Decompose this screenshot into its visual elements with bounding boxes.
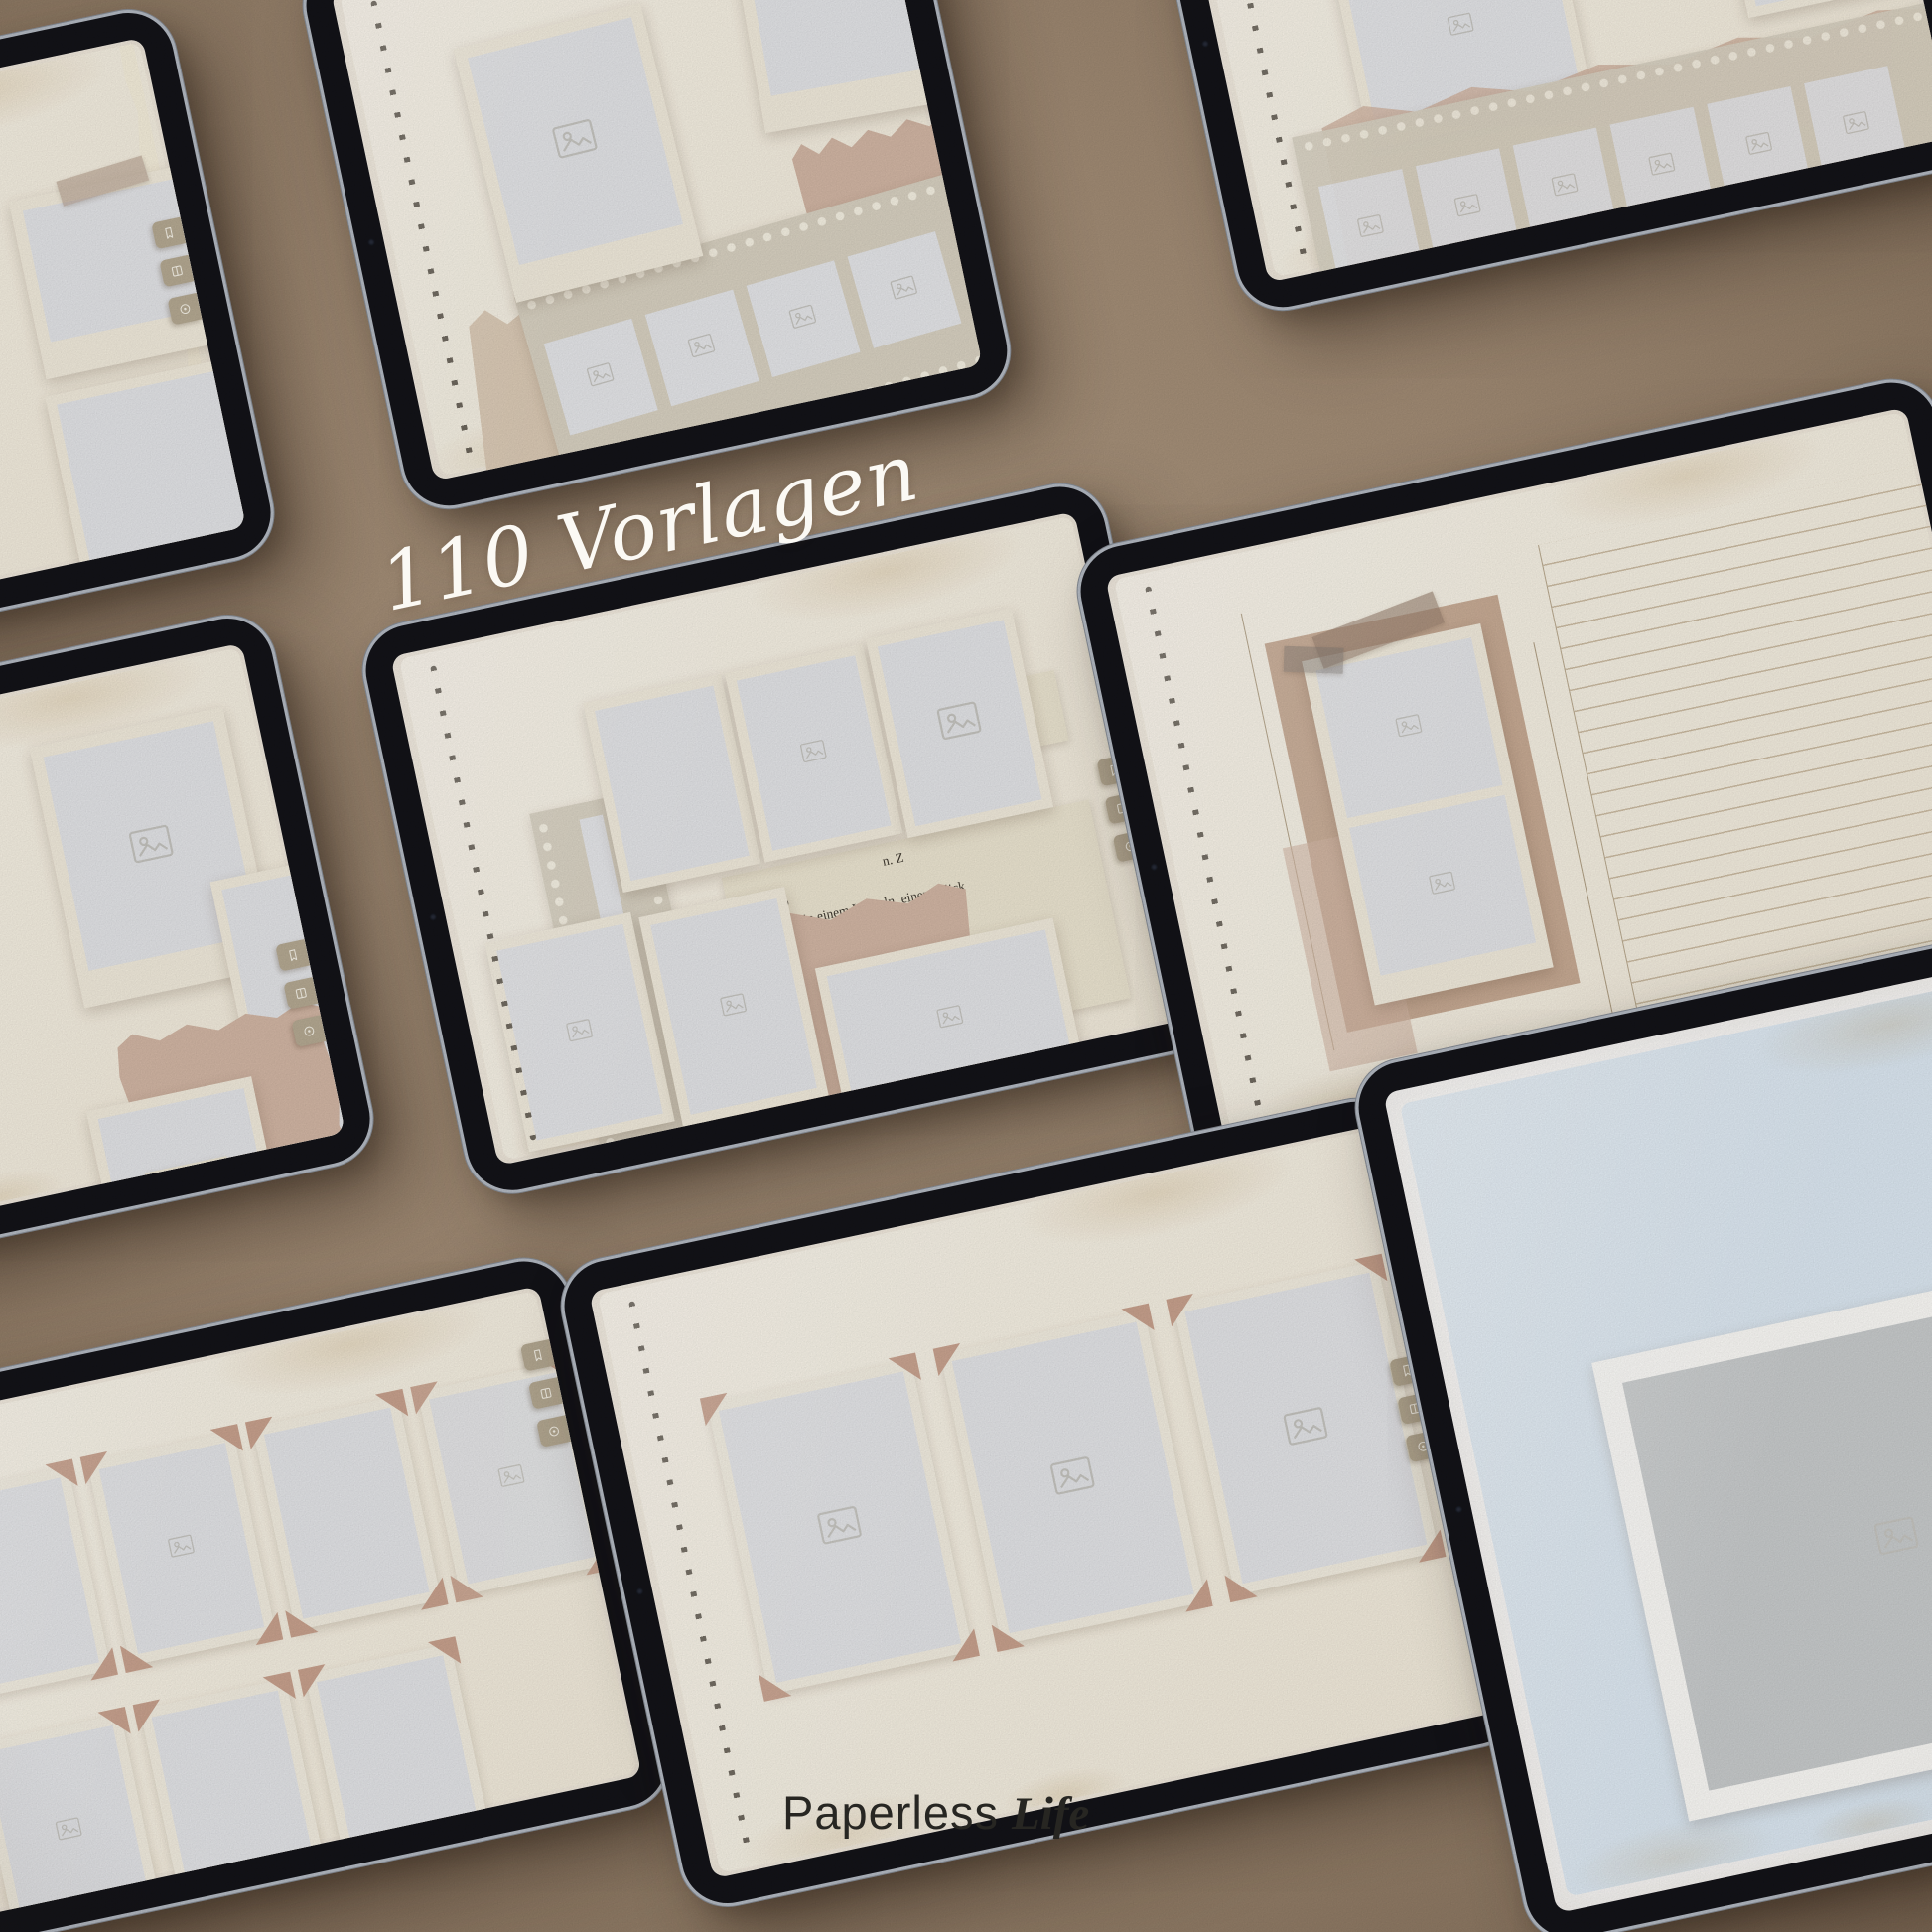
photo-corner bbox=[133, 1699, 166, 1731]
image-placeholder-icon bbox=[718, 990, 749, 1023]
photo-placeholder bbox=[1722, 0, 1932, 6]
polaroid-frame bbox=[723, 0, 955, 133]
photo-corner bbox=[415, 1578, 448, 1610]
photo-corner bbox=[138, 1895, 171, 1921]
image-placeholder-icon bbox=[166, 1532, 197, 1565]
photo-corner bbox=[303, 1860, 336, 1892]
image-placeholder-icon bbox=[934, 698, 986, 749]
photo-placeholder bbox=[737, 0, 937, 96]
pages-icon bbox=[292, 985, 310, 1003]
photo-corner bbox=[468, 1825, 500, 1858]
film-frame bbox=[1513, 128, 1618, 247]
photo-corner bbox=[451, 1570, 483, 1602]
photo-placeholder bbox=[99, 1443, 265, 1654]
photo-corner bbox=[1179, 1579, 1212, 1611]
pages-tab[interactable] bbox=[528, 1377, 563, 1410]
lens-icon bbox=[176, 300, 194, 318]
photo-corner bbox=[1224, 1570, 1257, 1602]
photo-corner bbox=[428, 1636, 461, 1669]
photo-placeholder bbox=[57, 370, 246, 614]
photo-corner bbox=[992, 1619, 1025, 1652]
stamp-frame bbox=[305, 1643, 493, 1878]
photo-placeholder bbox=[468, 17, 683, 265]
image-placeholder-icon bbox=[549, 115, 602, 167]
tablet-screen bbox=[589, 1126, 1494, 1878]
image-placeholder-icon bbox=[1870, 1512, 1922, 1563]
photo-corner bbox=[285, 1604, 318, 1637]
photo-corner bbox=[245, 1417, 278, 1449]
image-placeholder-icon bbox=[496, 1462, 527, 1495]
photo-corner bbox=[85, 1647, 118, 1680]
pages-tab[interactable] bbox=[283, 977, 318, 1010]
stamp-frame bbox=[1173, 1261, 1440, 1595]
stamp-frame bbox=[0, 1714, 164, 1920]
photo-placeholder bbox=[878, 620, 1042, 826]
stamp-frame bbox=[707, 1360, 973, 1695]
photo-corner bbox=[759, 1669, 791, 1702]
polaroid-frame bbox=[453, 3, 703, 303]
tablet-screen: Paperless life bbox=[331, 0, 982, 482]
photo-corner bbox=[263, 1672, 296, 1705]
washi-tape bbox=[1284, 646, 1344, 674]
photo-corner bbox=[80, 1451, 113, 1484]
image-placeholder-icon bbox=[585, 360, 618, 394]
photo-corner bbox=[97, 1707, 130, 1739]
film-frame bbox=[747, 260, 861, 377]
brand-word-regular: Paperless bbox=[782, 1785, 999, 1840]
photo-corner bbox=[889, 1353, 921, 1386]
photo-placeholder bbox=[719, 1372, 961, 1683]
lens-icon bbox=[545, 1423, 563, 1441]
scrap-text-line: ken u bbox=[160, 1183, 225, 1215]
tablet-screen: voll gelanken uleicht sein n. Zgibin ein… bbox=[390, 511, 1182, 1166]
stamp-frame bbox=[140, 1679, 329, 1914]
stamp-frame bbox=[417, 1361, 606, 1596]
film-frame bbox=[1609, 107, 1715, 226]
film-frame bbox=[645, 290, 759, 407]
photo-corner bbox=[250, 1612, 283, 1645]
image-placeholder-icon bbox=[787, 302, 820, 336]
notebook-page bbox=[0, 42, 241, 654]
photo-frame bbox=[45, 358, 246, 624]
lens-icon bbox=[300, 1023, 318, 1040]
tablet-bottom-right bbox=[1350, 911, 1932, 1932]
image-placeholder-icon bbox=[686, 331, 719, 364]
image-placeholder-icon bbox=[889, 273, 921, 307]
photo-corner bbox=[210, 1424, 243, 1456]
photo-placeholder bbox=[264, 1408, 430, 1619]
image-placeholder-icon bbox=[798, 737, 829, 769]
bookmark-tab[interactable] bbox=[151, 217, 186, 250]
image-placeholder-icon bbox=[814, 1502, 866, 1553]
image-placeholder-icon bbox=[1427, 869, 1457, 901]
image-placeholder-icon bbox=[812, 0, 863, 8]
photo-corner bbox=[1121, 1304, 1154, 1336]
tablet-screen bbox=[0, 38, 246, 660]
tablet-top-left bbox=[0, 4, 279, 692]
stamp-frame bbox=[252, 1396, 441, 1631]
photo-placeholder bbox=[595, 686, 750, 882]
image-placeholder-icon bbox=[1550, 171, 1581, 204]
tablet-middle-left: ll geken u bbox=[0, 610, 378, 1298]
film-frame bbox=[1318, 169, 1424, 282]
photo-corner bbox=[410, 1381, 443, 1414]
page-watermark: Paperless life bbox=[863, 1108, 924, 1130]
photo-frame bbox=[86, 1076, 277, 1233]
image-placeholder-icon bbox=[125, 820, 177, 871]
film-frame bbox=[1416, 148, 1521, 267]
photo-placeholder bbox=[952, 1322, 1194, 1633]
photo-placeholder bbox=[152, 1691, 318, 1902]
photo-corner bbox=[375, 1389, 408, 1422]
photo-placeholder bbox=[1315, 637, 1502, 818]
image-placeholder-icon bbox=[1647, 150, 1678, 183]
film-frame bbox=[1804, 66, 1909, 185]
photo-placeholder bbox=[98, 1088, 266, 1221]
tablet-screen: ll geken u bbox=[0, 643, 345, 1266]
bookmark-icon bbox=[528, 1346, 546, 1364]
film-frame bbox=[848, 231, 962, 348]
image-placeholder-icon bbox=[1355, 212, 1386, 245]
photo-placeholder bbox=[650, 898, 817, 1115]
bookmark-tab[interactable] bbox=[520, 1339, 555, 1372]
image-placeholder-icon bbox=[1394, 712, 1425, 745]
promo-canvas: Paperless life bbox=[0, 0, 1932, 1932]
photo-corner bbox=[298, 1664, 331, 1697]
scrap-text-line: ll ge bbox=[156, 1166, 221, 1197]
photo-corner bbox=[45, 1459, 77, 1492]
tablet-screen bbox=[1383, 944, 1932, 1913]
photo-corner bbox=[947, 1628, 980, 1661]
image-placeholder-icon bbox=[54, 1815, 84, 1848]
photo-placeholder bbox=[1622, 1285, 1932, 1791]
photo-corner bbox=[581, 1542, 614, 1575]
photo-placeholder bbox=[1349, 795, 1536, 976]
film-frame bbox=[1707, 86, 1812, 206]
photo-corner bbox=[1354, 1254, 1387, 1287]
image-placeholder-icon bbox=[1446, 10, 1476, 43]
notebook-page bbox=[1400, 961, 1932, 1897]
image-placeholder-icon bbox=[1452, 192, 1483, 224]
ruled-lines bbox=[1538, 457, 1932, 1012]
image-placeholder-icon bbox=[1841, 109, 1871, 142]
stamp-frame bbox=[940, 1311, 1206, 1645]
photo-mat bbox=[1591, 1254, 1932, 1821]
pages-icon bbox=[168, 262, 186, 280]
bookmark-icon bbox=[284, 946, 302, 964]
photo-placeholder bbox=[317, 1655, 483, 1866]
photo-corner bbox=[1166, 1294, 1198, 1326]
photo-placeholder bbox=[0, 1725, 152, 1921]
tablet-screen bbox=[0, 1286, 642, 1920]
photo-placeholder bbox=[1184, 1273, 1427, 1584]
tablet-screen bbox=[1165, 0, 1932, 283]
tablet-top-right bbox=[1132, 0, 1932, 316]
brand-word-italic: Life bbox=[1012, 1787, 1089, 1841]
photo-corner bbox=[173, 1887, 206, 1920]
photo-corner bbox=[120, 1640, 153, 1673]
image-placeholder-icon bbox=[1047, 1452, 1099, 1503]
photo-placeholder bbox=[0, 1477, 99, 1689]
film-frame bbox=[544, 319, 658, 436]
photo-placeholder bbox=[737, 655, 892, 851]
photo-corner bbox=[1413, 1530, 1446, 1563]
image-placeholder-icon bbox=[564, 1016, 595, 1048]
brand-logo: Paperless Life bbox=[782, 1785, 1089, 1841]
bookmark-tab[interactable] bbox=[275, 939, 310, 972]
image-placeholder-icon bbox=[1744, 129, 1775, 162]
pages-tab[interactable] bbox=[159, 255, 194, 288]
image-placeholder-icon bbox=[1280, 1403, 1331, 1453]
stamp-frame bbox=[87, 1431, 276, 1666]
bookmark-icon bbox=[160, 224, 178, 242]
pages-icon bbox=[537, 1385, 555, 1403]
photo-corner bbox=[933, 1343, 966, 1376]
photo-placeholder bbox=[429, 1372, 595, 1584]
image-placeholder-icon bbox=[934, 1002, 965, 1035]
photo-corner bbox=[700, 1393, 733, 1426]
photo-corner bbox=[338, 1853, 370, 1885]
stamp-frame bbox=[0, 1466, 111, 1702]
photo-frame bbox=[9, 159, 246, 379]
